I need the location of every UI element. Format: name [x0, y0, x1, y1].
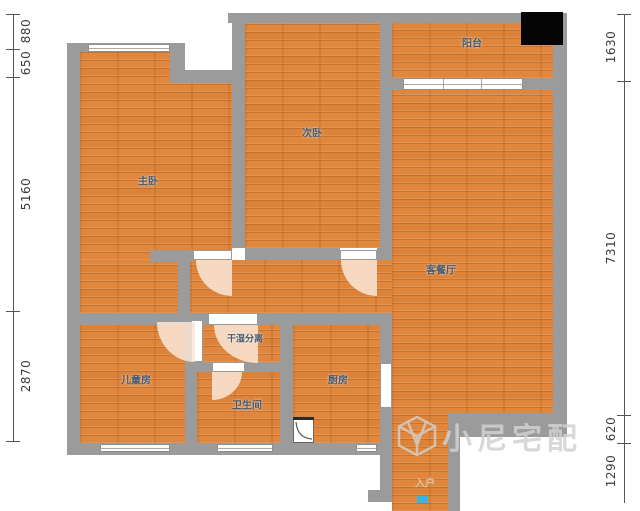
wall-second-bedroom-left	[232, 13, 245, 248]
corner-marker	[521, 12, 563, 45]
wall-wetdry-top-right	[258, 313, 280, 325]
dimension-tick	[617, 443, 631, 444]
dimension-left-5160: 5160	[19, 178, 33, 211]
dimension-right-620: 620	[604, 417, 618, 441]
wall-wetdry-bath-divider-right	[245, 362, 280, 372]
living-dining-label: 客餐厅	[426, 262, 456, 277]
wet-dry-label: 干湿分离	[227, 332, 263, 345]
water-fixture-icon	[293, 417, 314, 443]
dimension-line-right	[624, 14, 625, 503]
kids-room-label: 儿童房	[121, 372, 151, 387]
second-bedroom-label: 次卧	[302, 125, 322, 140]
wall-second-bedroom-right	[380, 14, 392, 260]
dimension-tick	[617, 14, 631, 15]
dimension-left-650: 650	[19, 51, 33, 75]
wall-top	[228, 13, 567, 23]
master-bedroom-floor	[80, 52, 232, 260]
wall-balcony-door-left	[392, 78, 403, 90]
kitchen-label: 厨房	[328, 372, 348, 387]
dimension-left-2870: 2870	[19, 360, 33, 393]
wall-kitchen-top	[293, 313, 392, 325]
watermark-cube-icon	[395, 414, 439, 458]
bathroom-door-opening	[212, 362, 245, 372]
wall-bathroom-right	[280, 313, 293, 455]
wall-second-bedroom-bottom-stub	[377, 248, 392, 260]
dimension-tick	[6, 77, 20, 78]
wall-wetdry-bath-divider-left	[197, 362, 212, 372]
dimension-tick	[6, 441, 20, 442]
watermark-text: 小尼宅配	[442, 414, 582, 458]
dimension-left-880: 880	[19, 19, 33, 43]
entry-label: 入户	[415, 475, 435, 490]
living-dining-floor	[392, 90, 553, 415]
second-bedroom-door-opening	[340, 250, 377, 260]
wall-right	[553, 14, 567, 437]
master-window	[88, 44, 170, 52]
floor-plan: 主卧 次卧 阳台 客餐厅 干湿分离 儿童房 卫生间 厨房 入户 880 650 …	[0, 0, 640, 511]
bathroom-window	[217, 444, 273, 452]
wall-second-bedroom-bottom	[245, 248, 340, 260]
dimension-right-7310: 7310	[604, 232, 618, 265]
wall-corridor-stub	[368, 490, 392, 502]
dimension-tick	[6, 311, 20, 312]
dimension-line-left	[13, 14, 14, 441]
dimension-tick	[617, 81, 631, 82]
balcony-sliding-door	[403, 78, 523, 90]
wall-notch-vertical	[170, 43, 185, 83]
dimension-tick	[617, 415, 631, 416]
kitchen-door-opening	[380, 363, 392, 408]
dimension-right-1290: 1290	[604, 455, 618, 488]
wetdry-door-opening	[208, 313, 258, 325]
master-bedroom-nook-floor	[80, 260, 178, 313]
dimension-right-1630: 1630	[604, 31, 618, 64]
wall-balcony-door-right	[523, 78, 553, 90]
wall-pocket-vertical	[178, 262, 190, 313]
kids-window	[100, 444, 170, 452]
master-bedroom-label: 主卧	[138, 173, 158, 188]
wall-master-bottom-stub	[150, 250, 193, 262]
balcony-label: 阳台	[462, 35, 482, 50]
entry-door-marker	[417, 496, 428, 503]
dimension-tick	[6, 49, 20, 50]
bathroom-label: 卫生间	[232, 397, 262, 412]
wall-left	[67, 43, 80, 453]
wall-notch-horizontal	[185, 70, 232, 83]
master-door-opening	[193, 250, 232, 260]
dimension-tick	[6, 14, 20, 15]
kitchen-window	[356, 444, 377, 452]
